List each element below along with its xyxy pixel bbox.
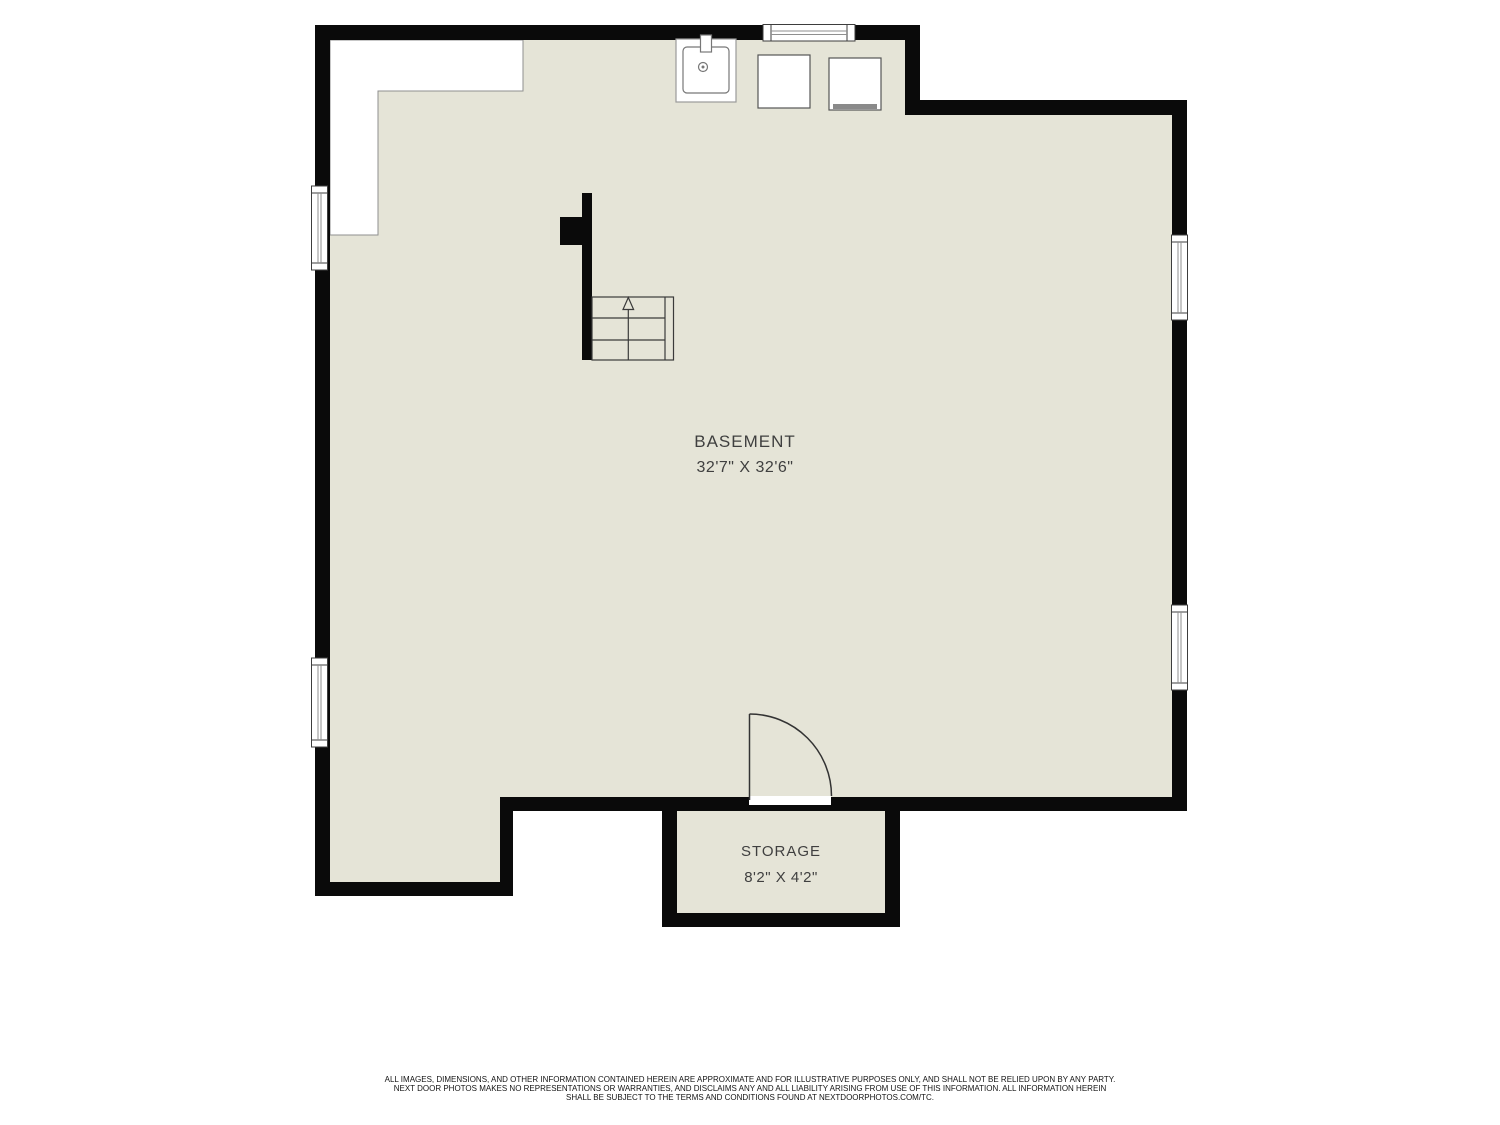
- wall-right: [1172, 100, 1187, 811]
- storage-room-label: STORAGE: [681, 843, 881, 860]
- appliance-1: [758, 55, 810, 108]
- stair-wall-post: [560, 217, 582, 245]
- sink-fixture: [676, 35, 736, 102]
- storage-wall-right: [885, 811, 900, 927]
- window-left-2: [312, 658, 328, 747]
- appliance-2: [829, 58, 881, 110]
- window-right-2: [1172, 605, 1188, 690]
- stair-wall: [582, 193, 592, 360]
- basement-floor-bottom-left: [330, 795, 513, 882]
- wall-top-right: [905, 100, 1187, 115]
- wall-bottom-step: [500, 797, 513, 896]
- wall-bottom-mid: [500, 797, 1187, 811]
- storage-room-dimensions: 8'2" X 4'2": [681, 869, 881, 886]
- floorplan-page: BASEMENT 32'7" X 32'6" STORAGE 8'2" X 4'…: [0, 0, 1500, 1125]
- wall-left: [315, 25, 330, 896]
- wall-bottom-left: [315, 882, 513, 896]
- door-threshold: [749, 796, 831, 805]
- basement-room-dimensions: 32'7" X 32'6": [545, 459, 945, 477]
- window-left-1: [312, 186, 328, 270]
- basement-floor-left: [330, 40, 905, 797]
- window-top: [763, 25, 855, 42]
- storage-wall-bottom: [662, 913, 900, 927]
- storage-wall-left: [662, 811, 677, 927]
- sink-faucet-icon: [701, 35, 712, 52]
- floorplan-drawing: [0, 0, 1500, 1125]
- disclaimer-line-3: SHALL BE SUBJECT TO THE TERMS AND CONDIT…: [325, 1094, 1175, 1103]
- window-right-1: [1172, 235, 1188, 320]
- basement-room-label: BASEMENT: [545, 432, 945, 452]
- storage-floor: [677, 811, 885, 913]
- disclaimer-text: ALL IMAGES, DIMENSIONS, AND OTHER INFORM…: [325, 1076, 1175, 1102]
- basement-floor-right: [905, 115, 1172, 797]
